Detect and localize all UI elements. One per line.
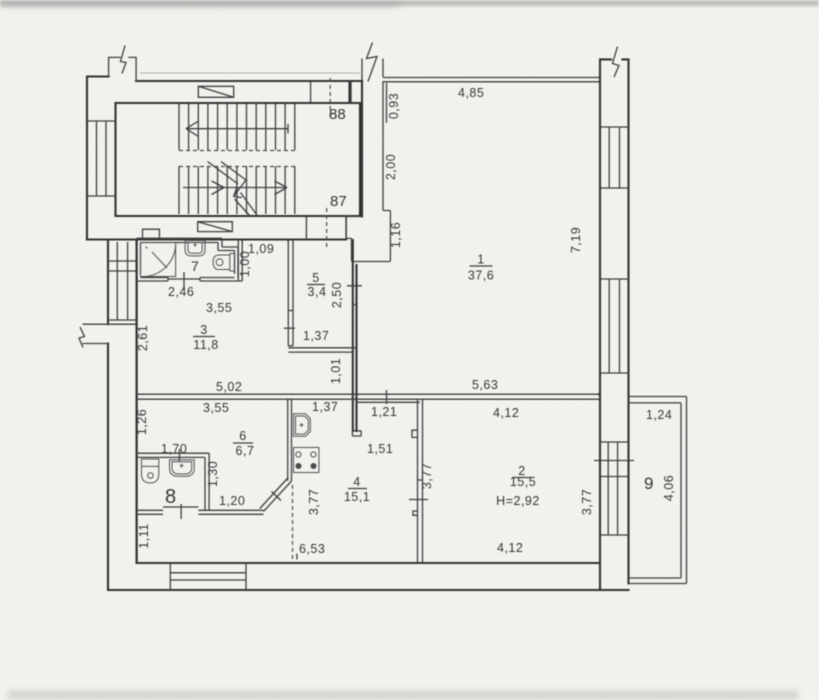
svg-text:1,37: 1,37	[303, 329, 329, 343]
svg-text:1,20: 1,20	[219, 494, 245, 508]
svg-text:4: 4	[353, 475, 360, 489]
svg-text:3,55: 3,55	[206, 301, 232, 315]
svg-text:11,8: 11,8	[193, 338, 218, 352]
svg-text:1,30: 1,30	[206, 461, 220, 487]
svg-text:1,00: 1,00	[238, 251, 252, 277]
svg-text:3,77: 3,77	[307, 489, 321, 515]
svg-text:1,21: 1,21	[371, 405, 397, 419]
svg-text:5,63: 5,63	[472, 378, 498, 392]
svg-text:1,16: 1,16	[389, 222, 403, 248]
svg-text:4,12: 4,12	[493, 406, 519, 420]
svg-text:15,1: 15,1	[344, 490, 370, 504]
svg-text:2,46: 2,46	[168, 285, 194, 299]
svg-text:1,01: 1,01	[329, 358, 343, 384]
svg-text:15,5: 15,5	[510, 475, 536, 489]
svg-text:7: 7	[191, 258, 199, 274]
svg-text:3: 3	[200, 323, 207, 337]
svg-text:6,53: 6,53	[299, 542, 325, 556]
svg-text:3,55: 3,55	[203, 401, 229, 415]
svg-text:1,37: 1,37	[312, 400, 338, 414]
svg-text:4,06: 4,06	[662, 475, 676, 501]
svg-text:H=2,92: H=2,92	[496, 494, 540, 508]
svg-text:2,61: 2,61	[136, 325, 150, 351]
svg-text:4,85: 4,85	[458, 86, 484, 100]
svg-text:6: 6	[239, 429, 246, 443]
svg-text:5,02: 5,02	[216, 380, 242, 394]
svg-text:1,51: 1,51	[367, 442, 393, 456]
svg-text:2,50: 2,50	[330, 282, 344, 308]
svg-text:7,19: 7,19	[569, 227, 583, 253]
svg-text:1: 1	[477, 253, 484, 267]
svg-text:5: 5	[312, 271, 319, 285]
svg-text:4,12: 4,12	[497, 541, 523, 555]
svg-text:3,77: 3,77	[420, 463, 434, 489]
svg-text:9: 9	[644, 474, 653, 493]
svg-text:87: 87	[330, 193, 347, 210]
svg-text:0,93: 0,93	[387, 93, 401, 119]
svg-text:8: 8	[165, 486, 176, 508]
svg-text:1,70: 1,70	[161, 442, 187, 456]
svg-text:3,77: 3,77	[580, 489, 594, 515]
svg-text:6,7: 6,7	[236, 444, 255, 458]
svg-text:88: 88	[329, 106, 346, 123]
svg-text:2,00: 2,00	[384, 154, 398, 180]
svg-text:1,24: 1,24	[646, 408, 672, 422]
svg-text:37,6: 37,6	[468, 269, 494, 283]
svg-text:1,26: 1,26	[135, 409, 149, 435]
svg-text:1,11: 1,11	[137, 523, 151, 548]
svg-text:3,4: 3,4	[308, 285, 327, 299]
